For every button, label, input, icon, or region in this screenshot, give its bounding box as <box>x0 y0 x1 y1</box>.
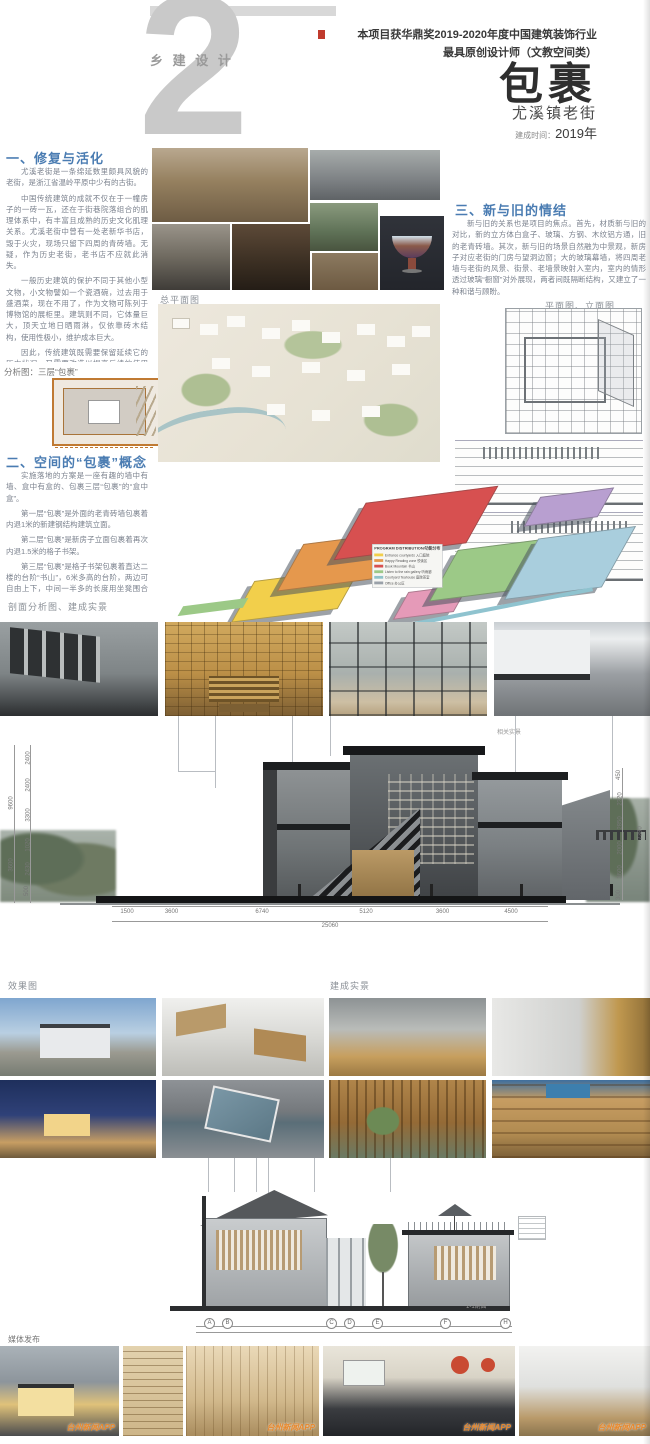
photo-old-alley <box>312 253 378 290</box>
ground-slab <box>96 896 566 903</box>
dim-line-total <box>112 921 548 922</box>
program-legend: PROGRAM DISTRIBUTION/功能分布 Entrance court… <box>372 544 443 588</box>
small-dim-line2 <box>196 1332 512 1333</box>
legend-swatch-red <box>374 565 383 568</box>
page-edge-shadow <box>643 0 650 1444</box>
section-analysis-label: 剖面分析图、建成实景 <box>8 600 108 613</box>
photo-timber-canopy <box>329 1080 486 1158</box>
dim-number: 2400 <box>26 778 32 791</box>
section-ref-label: 1-1剖面 <box>466 1301 487 1310</box>
dim-number: 2000 <box>618 841 624 854</box>
leader-line <box>208 1158 209 1192</box>
grid-bubble: A <box>204 1318 215 1329</box>
dim-number: 4500 <box>474 909 548 915</box>
left-floor-slab <box>277 824 350 830</box>
presentation-board: 2 乡 建 设 计 本项目获华鼎奖2019-2020年度中国建筑装饰行业 最具原… <box>0 0 650 1444</box>
section1-heading: 一、修复与活化 <box>6 148 104 167</box>
stair-wood-core <box>352 850 414 900</box>
dim-number: 2320 <box>618 792 624 805</box>
dim-number: 5120 <box>321 909 411 915</box>
dim-number: 2400 <box>26 751 32 764</box>
watermark: 台州新闻APP <box>598 1422 646 1433</box>
dim-number: 6740 <box>203 909 321 915</box>
analysis-diagram-label: 分析图：三层“包裹” <box>4 366 78 378</box>
lit-storefront <box>18 1384 74 1416</box>
reading-table <box>219 704 269 712</box>
section1-body: 尤溪老街是一条绵延数里颇具风貌的老街，是浙江省温岭平原中少有的古街。 中国传统建… <box>6 166 148 362</box>
right-mid-slab <box>478 822 562 828</box>
legend-swatch-grey <box>374 582 383 585</box>
paragraph: 第一层“包裹”是外面的老青砖墙包裹着内退1米的新建钢结构建筑立面。 <box>6 508 148 531</box>
legend-row: Courtyard Teahouse 庭院茶室 <box>374 575 440 580</box>
paragraph: 因此，传统建筑既需要保留延续它的历史状况，又需要改造以提高后续的使用效率。此案，… <box>6 347 148 362</box>
legend-swatch-teal <box>374 576 383 579</box>
bowl-base <box>402 269 422 273</box>
annotation-box <box>518 1216 546 1240</box>
watermark: 台州新闻APP <box>463 1422 511 1433</box>
trees-left <box>0 830 116 902</box>
person-silhouette <box>430 884 433 896</box>
grid-bubble: C <box>326 1318 337 1329</box>
left-bookshelf-hatch <box>216 1230 302 1270</box>
dim-number: 300 <box>616 890 622 900</box>
legend-row: Office 办公区 <box>374 580 440 585</box>
legend-label: Office 办公区 <box>385 580 405 585</box>
photo-media-event: 台州新闻APP <box>323 1346 515 1436</box>
screen <box>546 1084 590 1098</box>
paragraph: 中国传统建筑的成就不仅在于一幢房子的一砖一瓦，还在于街巷院落组合的肌理体系中，有… <box>6 193 148 272</box>
paragraph: 第三层“包裹”是格子书架包裹着直达二楼的台阶“书山”，6米多高的台阶，两边可自由… <box>6 561 148 592</box>
photo-model-collage <box>162 998 324 1076</box>
right-volume <box>478 780 562 900</box>
grid-bubble: E <box>372 1318 383 1329</box>
photo-old-street-facade <box>310 150 440 200</box>
lit-window <box>44 1114 90 1136</box>
photo-media-dusk-exterior: 台州新闻APP <box>0 1346 119 1436</box>
legend-row: Book Mountain 书山 <box>374 564 440 569</box>
dim-number: 3600 <box>140 909 203 915</box>
paragraph: 新与旧的关系也是项目的焦点。首先，材质新与旧的对比，新的立方体白盒子、玻璃、方钢… <box>452 218 646 297</box>
dim-number: 450 <box>616 770 622 780</box>
green-patch <box>358 400 424 440</box>
render-white-building <box>40 1024 110 1058</box>
elevation-screen <box>483 447 603 459</box>
photo-render-night <box>0 1080 156 1158</box>
wrap-analysis-diagram <box>52 378 162 446</box>
render-label: 效果图 <box>8 979 38 992</box>
dim-number: 1020 <box>26 838 32 851</box>
leader-line <box>234 1158 235 1192</box>
watermark: 台州新闻APP <box>267 1422 315 1433</box>
photo-old-door <box>152 224 230 290</box>
related-photos-label: 相关实景 <box>497 727 521 736</box>
dim-line-left-outer <box>14 745 15 903</box>
photo-glass-wall-brick <box>329 622 487 716</box>
photo-media-bookroom: 台州新闻APP <box>186 1346 319 1436</box>
cad-floor-plan <box>505 308 642 434</box>
green-patch <box>176 370 236 410</box>
page-subtitle: 尤溪镇老街 <box>305 102 597 123</box>
person-silhouette <box>610 884 613 896</box>
left-cut-wall <box>263 762 277 900</box>
tree-crown <box>363 1104 403 1138</box>
dim-number: 1500 <box>114 909 140 915</box>
axon-diagram <box>195 466 525 622</box>
built-time: 建成时间：2019年 <box>305 123 597 143</box>
photo-old-street-buildings <box>152 148 308 222</box>
legend-title: PROGRAM DISTRIBUTION/功能分布 <box>374 546 440 552</box>
award-line1: 本项目获华鼎奖2019-2020年度中国建筑装饰行业 <box>305 26 597 44</box>
legend-label: Happy Reading zone 悦读区 <box>385 558 427 563</box>
leader-line <box>314 1158 315 1192</box>
photo-book-mountain-interior <box>165 622 323 716</box>
photo-media-bookwall <box>123 1346 183 1436</box>
wrap-diagram-slope <box>136 386 156 436</box>
leader-line <box>390 1158 391 1192</box>
center-roof-slab <box>343 746 485 755</box>
built-time-label: 建成时间： <box>515 131 555 140</box>
wrap-layer-3 <box>88 400 120 424</box>
legend-swatch-orange <box>374 559 383 562</box>
bowl-icon <box>392 236 432 258</box>
photo-new-old-alley <box>494 622 650 716</box>
right-shelf-hatch <box>434 1246 496 1280</box>
grid-bubble: F <box>440 1318 451 1329</box>
series-title: 乡 建 设 计 <box>150 50 234 69</box>
paragraph: 第二层“包裹”是新房子立面包裹着再次内退1.5米的格子书架。 <box>6 534 148 557</box>
paragraph: 实施落地的方案是一座有趣的墙中有墙、盒中有盒的、包裹三层“包裹”的“盒中盒”。 <box>6 470 148 504</box>
dim-number: 2850 <box>618 816 624 829</box>
grid-bubble: D <box>344 1318 355 1329</box>
paragraph: 尤溪老街是一条绵延数里颇具风貌的老街，是浙江省温岭平原中少有的古街。 <box>6 166 148 189</box>
media-label: 媒体发布 <box>8 1334 40 1345</box>
photo-interior-corridor <box>492 998 650 1076</box>
dim-number: 9600 <box>9 796 15 809</box>
wrap-diagram-dashline <box>55 447 153 448</box>
framed-art <box>10 627 100 682</box>
projector-screen <box>343 1360 385 1386</box>
red-sign <box>481 1358 495 1372</box>
dim-total: 25060 <box>112 923 548 929</box>
section2-body: 实施落地的方案是一座有趣的墙中有墙、盒中有盒的、包裹三层“包裹”的“盒中盒”。 … <box>6 470 148 592</box>
legend-label: Book Mountain 书山 <box>385 564 415 569</box>
legend-label: Listen to the rain gallery 听雨廊 <box>385 569 432 574</box>
right-roof-slab <box>402 1230 514 1235</box>
dim-line-right <box>622 768 623 900</box>
leader-line <box>256 1158 257 1192</box>
dim-line-bottom <box>112 906 548 907</box>
person-silhouette <box>298 884 301 896</box>
photo-courtyard-glass <box>329 998 486 1076</box>
section3-body: 新与旧的关系也是项目的焦点。首先，材质新与旧的对比，新的立方体白盒子、玻璃、方钢… <box>452 218 646 298</box>
grid-bubble: H <box>500 1318 511 1329</box>
mid-glass <box>326 1238 366 1306</box>
legend-row: Entrance courtyards 入口庭院 <box>374 552 440 557</box>
person-silhouette <box>520 884 523 896</box>
plan-inner-wall <box>524 337 606 403</box>
legend-label: Courtyard Teahouse 庭院茶室 <box>385 575 430 580</box>
plan-diagonal-wing <box>598 319 634 407</box>
new-white-volume <box>494 630 590 680</box>
model-roof <box>176 1004 226 1037</box>
dim-line-left <box>30 745 31 903</box>
dim-number: 2430 <box>26 862 32 875</box>
section3-heading: 三、新与旧的情结 <box>455 200 567 219</box>
photo-old-courtyard <box>232 224 310 290</box>
right-end-wall <box>562 790 610 900</box>
dim-number: 3600 <box>411 909 474 915</box>
legend-swatch-green <box>374 570 383 573</box>
green-patch <box>278 328 348 362</box>
dim-number: 3300 <box>26 808 32 821</box>
photo-brick-gallery-interior <box>0 622 158 716</box>
site-plan-buildings <box>172 318 190 329</box>
built-label: 建成实景 <box>330 979 370 992</box>
dim-number: 3600 <box>618 865 624 878</box>
ground-line <box>60 903 620 905</box>
small-section-drawing <box>150 1188 550 1334</box>
paragraph: 一般历史建筑的保护不同于其他小型文物，小文物譬如一个瓷酒碗，过去用于盛酒菜，现在… <box>6 275 148 343</box>
red-sign <box>451 1356 469 1374</box>
left-cut-wall <box>202 1196 206 1306</box>
photo-porcelain-bowl <box>380 216 444 290</box>
section2-heading: 二、空间的“包裹”概念 <box>6 452 147 471</box>
legend-swatch-yellow <box>374 554 383 557</box>
aerial-roof <box>204 1085 280 1142</box>
left-roof-slab <box>263 762 353 770</box>
photo-book-stair-people <box>492 1080 650 1158</box>
photo-old-street-foliage <box>310 203 378 251</box>
model-roof <box>254 1028 306 1061</box>
ground-slab <box>170 1306 510 1311</box>
built-time-year: 2019年 <box>555 126 597 141</box>
dim-number: 3600 <box>9 858 15 871</box>
site-plan-map <box>158 304 440 462</box>
right-roof-slab <box>472 772 568 780</box>
legend-label: Entrance courtyards 入口庭院 <box>385 552 429 557</box>
photo-aerial-view <box>162 1080 324 1158</box>
photo-render-daytime <box>0 998 156 1076</box>
watermark: 台州新闻APP <box>67 1422 115 1433</box>
legend-row: Happy Reading zone 悦读区 <box>374 558 440 563</box>
grid-bubble: B <box>222 1318 233 1329</box>
book-stairs <box>209 676 279 702</box>
umbrella-icon <box>438 1204 472 1216</box>
main-section-drawing <box>0 738 650 938</box>
dim-number: 500 <box>24 886 30 896</box>
legend-row: Listen to the rain gallery 听雨廊 <box>374 569 440 574</box>
tree-trunk <box>382 1272 384 1306</box>
photo-media-window-readers: 台州新闻APP <box>519 1346 650 1436</box>
